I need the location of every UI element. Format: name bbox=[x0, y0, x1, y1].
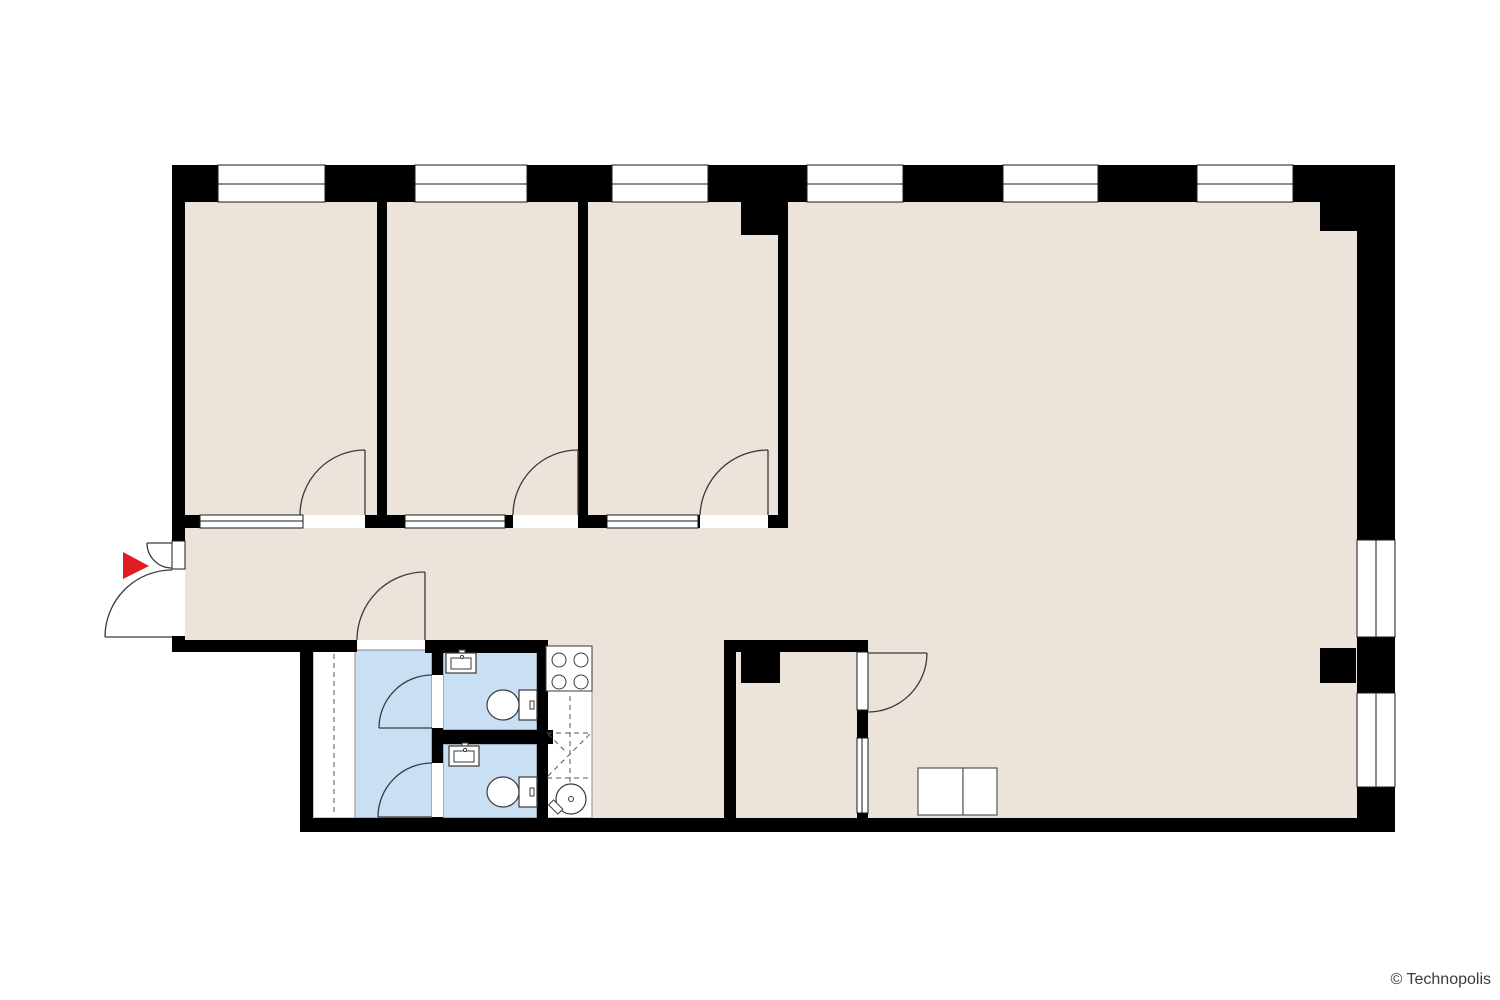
kitchen-sink-drain bbox=[569, 797, 574, 802]
room-3-door-opening bbox=[700, 515, 768, 528]
room-1-door-opening bbox=[300, 515, 365, 528]
meeting-table bbox=[918, 768, 997, 815]
wc-1-door-opening bbox=[432, 675, 443, 728]
meeting-room-left-wall bbox=[724, 640, 736, 818]
lower-left-wall bbox=[300, 650, 313, 818]
hallway-bottom-wall-right bbox=[425, 640, 548, 653]
room-3-floor bbox=[588, 202, 778, 515]
floor-plan-drawing bbox=[0, 0, 1500, 1000]
entrance-side-panel bbox=[172, 541, 185, 569]
entrance-door-main-leaf bbox=[105, 570, 172, 637]
meeting-room-right-wall-stub bbox=[857, 813, 868, 818]
room-2-door-opening bbox=[513, 515, 578, 528]
stove-burner-icon bbox=[574, 675, 588, 689]
floor-plan-page: © Technopolis bbox=[0, 0, 1500, 1000]
wc-1-washbasin-icon bbox=[446, 650, 476, 673]
divider-room3-open-area bbox=[778, 202, 788, 528]
table-segment bbox=[918, 768, 963, 815]
hallway-bottom-wall-left bbox=[172, 640, 357, 652]
meeting-room-right-wall-segment bbox=[857, 710, 868, 738]
wc-2-toilet-icon bbox=[487, 777, 537, 807]
table-segment bbox=[963, 768, 997, 815]
meeting-room-door-opening bbox=[857, 652, 868, 710]
wc-2-washbasin-icon bbox=[449, 743, 479, 766]
room-3-corner-pillar bbox=[741, 202, 778, 235]
hallway-floor bbox=[185, 528, 788, 640]
meeting-room-corner-pillar bbox=[741, 652, 780, 683]
room-2-floor bbox=[387, 202, 578, 515]
wc-1-toilet-icon bbox=[487, 690, 537, 720]
divider-room1-room2 bbox=[377, 202, 387, 528]
meeting-room-top-wall bbox=[724, 640, 868, 652]
washroom-lobby-floor bbox=[355, 650, 432, 818]
stove-burner-icon bbox=[552, 653, 566, 667]
left-wall bbox=[172, 165, 185, 541]
wc-divider-wall bbox=[432, 730, 553, 744]
entrance-door-small-leaf bbox=[147, 543, 172, 568]
top-right-step-wall bbox=[1320, 202, 1395, 231]
wc-2-door-opening bbox=[432, 763, 443, 817]
right-wall-pillar bbox=[1320, 648, 1356, 683]
bottom-wall bbox=[300, 818, 1395, 832]
stove-burner-icon bbox=[574, 653, 588, 667]
copyright-text: © Technopolis bbox=[1391, 971, 1491, 989]
room-1-floor bbox=[185, 202, 377, 515]
stove-burner-icon bbox=[552, 675, 566, 689]
open-area-floor bbox=[788, 202, 1357, 818]
divider-room2-room3 bbox=[578, 202, 588, 528]
